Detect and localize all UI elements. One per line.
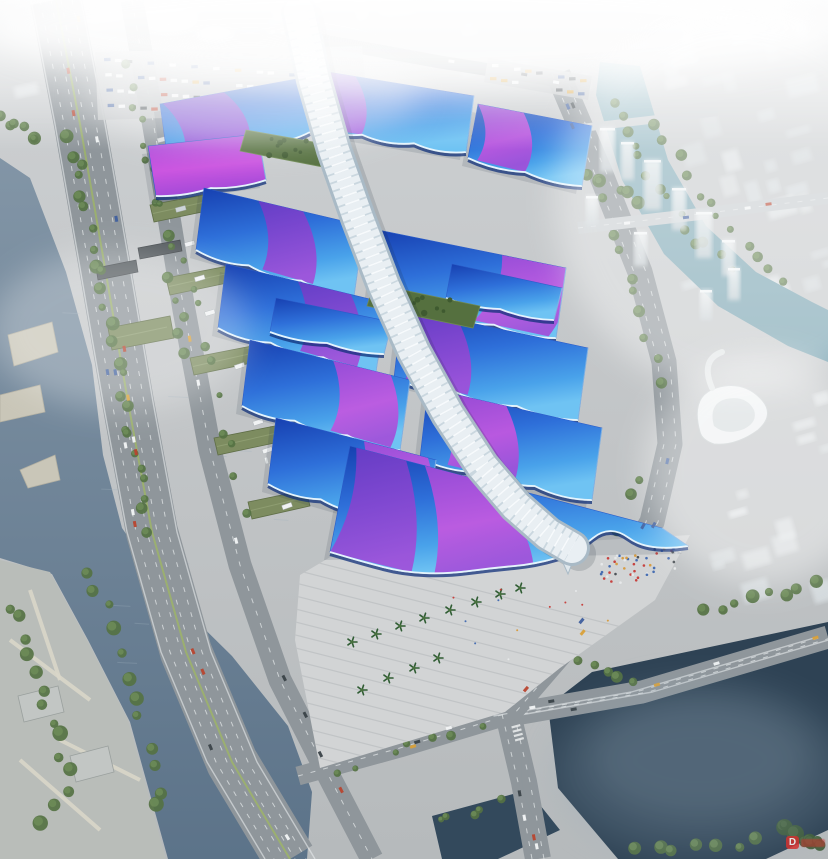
tree-highlight [75,171,80,176]
person-dot [474,642,476,644]
tree-highlight [811,576,819,584]
tree-highlight [82,568,89,575]
tree-highlight [79,202,85,208]
tree-highlight [55,753,61,759]
person-dot [635,559,638,562]
tree-highlight [137,503,144,510]
tree-highlight [334,770,338,774]
person-dot [607,620,609,622]
tree-highlight [765,589,770,594]
tree-highlight [118,649,124,655]
tree-highlight [49,800,56,807]
tree-highlight [480,724,484,728]
tree-highlight [657,378,664,385]
tree-highlight [353,766,357,770]
palm-crown [398,624,401,627]
tree-highlight [78,160,84,166]
person-dot [603,577,606,580]
courtyard-tree [447,297,452,302]
palm-crown [350,640,353,643]
tree-highlight [51,720,56,725]
aerial-rendering-stage: D [0,0,828,859]
courtyard-tree [420,295,425,300]
tree-highlight [107,622,116,631]
tree-highlight [14,610,21,617]
person-dot [637,576,640,579]
tree-highlight [168,244,172,248]
palm-crown [386,676,389,679]
tree-highlight [74,191,81,198]
tree-highlight [123,673,131,681]
person-dot [614,573,617,576]
tree-highlight [6,605,12,611]
tree-highlight [243,509,248,514]
tree-highlight [34,817,43,826]
person-dot [608,565,611,568]
tree-highlight [443,813,447,817]
tree-highlight [471,811,476,816]
tree-highlight [106,601,111,606]
tree-highlight [39,686,46,693]
tree-highlight [142,528,148,534]
person-dot [637,556,640,559]
tree-highlight [141,496,146,501]
person-dot [601,571,604,574]
person-dot [643,564,646,567]
tree-highlight [156,788,163,795]
person-dot [613,560,616,563]
tree-highlight [719,606,725,612]
tree-highlight [698,604,705,611]
watermark-text-mark [801,839,825,847]
person-dot [500,589,502,591]
watermark-logo-icon: D [786,836,799,849]
tree-highlight [90,246,95,251]
tree-highlight [219,430,224,435]
courtyard-tree [421,310,427,316]
mist-patch [0,250,250,410]
courtyard-tree [266,152,272,158]
palm-crown [412,666,415,669]
person-dot [631,573,634,576]
courtyard-tree [299,150,303,154]
person-dot [465,620,467,622]
person-dot [645,557,648,560]
person-dot [653,567,656,570]
tree-highlight [217,393,221,397]
person-dot [652,571,655,574]
tree-highlight [476,807,480,811]
palm-crown [360,688,363,691]
tree-highlight [87,586,94,593]
person-dot [507,658,509,660]
tree-highlight [781,590,789,598]
tree-highlight [150,798,159,807]
person-dot [619,581,622,584]
person-dot [564,601,566,603]
photo-watermark: D [786,836,825,849]
tree-highlight [90,225,95,230]
tree-highlight [230,473,235,478]
person-dot [575,590,577,592]
exhibition-center-aerial-view [0,0,828,859]
palm-crown [518,586,521,589]
courtyard-tree [282,152,288,158]
tree-highlight [228,441,232,445]
tree-highlight [731,600,736,605]
tree-highlight [123,429,129,435]
person-dot [610,580,613,583]
person-dot [549,606,551,608]
palm-crown [448,608,451,611]
tree-highlight [150,761,157,768]
tree-highlight [447,731,453,737]
person-dot [674,567,677,570]
tree-highlight [612,672,619,679]
person-dot [673,561,676,564]
mist-patch [80,43,420,147]
tree-highlight [629,678,634,683]
tree-highlight [164,231,171,238]
palm-crown [436,656,439,659]
person-dot [623,559,626,562]
tree-highlight [54,727,63,736]
tree-highlight [147,744,154,751]
person-dot [516,629,518,631]
tree-highlight [498,795,503,800]
tree-highlight [141,475,146,480]
tree-highlight [21,648,29,656]
tree-highlight [636,477,641,482]
person-dot [497,599,499,601]
palm-crown [498,592,501,595]
tree-highlight [64,763,72,771]
tree-highlight [131,692,140,701]
tree-highlight [626,489,633,496]
person-dot [625,557,628,560]
tree-highlight [393,750,397,754]
tree-highlight [138,465,143,470]
tree-highlight [31,667,39,675]
person-dot [621,557,624,560]
person-dot [615,563,618,566]
tree-highlight [21,635,27,641]
person-dot [649,564,652,567]
palm-crown [374,632,377,635]
courtyard-tree [435,306,439,310]
person-dot [614,557,617,560]
tree-highlight [133,712,138,717]
person-dot [607,557,610,560]
tree-highlight [792,584,799,591]
palm-crown [422,616,425,619]
palm-crown [474,600,477,603]
tree-highlight [438,817,442,821]
tree-highlight [37,700,43,706]
person-dot [635,579,638,582]
tree-highlight [747,590,755,598]
person-dot [633,570,636,573]
person-dot [646,573,649,576]
person-dot [633,563,636,566]
person-dot [600,563,603,566]
person-dot [667,557,670,560]
courtyard-tree [415,297,421,303]
person-dot [608,571,611,574]
person-dot [623,567,626,570]
tree-highlight [591,661,596,666]
tree-highlight [574,657,579,662]
courtyard-tree [442,309,446,313]
person-dot [606,575,609,578]
person-dot [581,604,583,606]
tree-highlight [64,787,71,794]
person-dot [452,597,454,599]
tree-highlight [604,668,610,674]
tree-highlight [68,152,75,159]
